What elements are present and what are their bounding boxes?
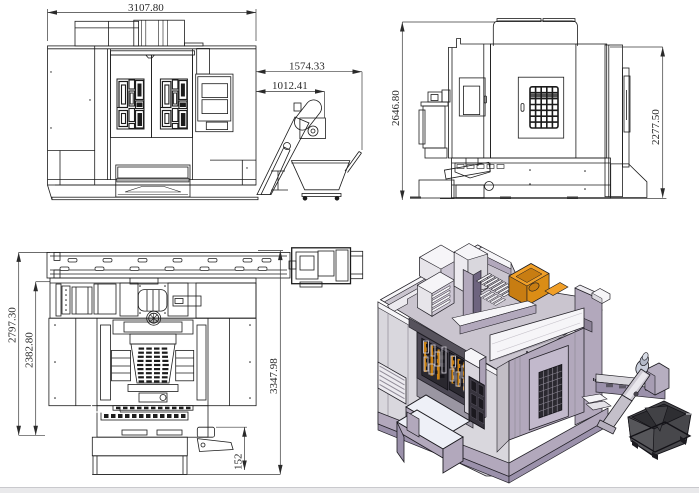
svg-text:3347.98: 3347.98	[268, 358, 280, 394]
svg-text:1012.41: 1012.41	[272, 80, 308, 92]
svg-text:152: 152	[233, 454, 245, 471]
svg-text:2277.50: 2277.50	[650, 109, 662, 145]
svg-text:1574.33: 1574.33	[289, 61, 325, 73]
svg-text:2646.80: 2646.80	[390, 90, 402, 126]
svg-text:3107.80: 3107.80	[128, 2, 164, 14]
svg-text:2382.80: 2382.80	[24, 332, 36, 368]
svg-text:2797.30: 2797.30	[7, 307, 19, 343]
